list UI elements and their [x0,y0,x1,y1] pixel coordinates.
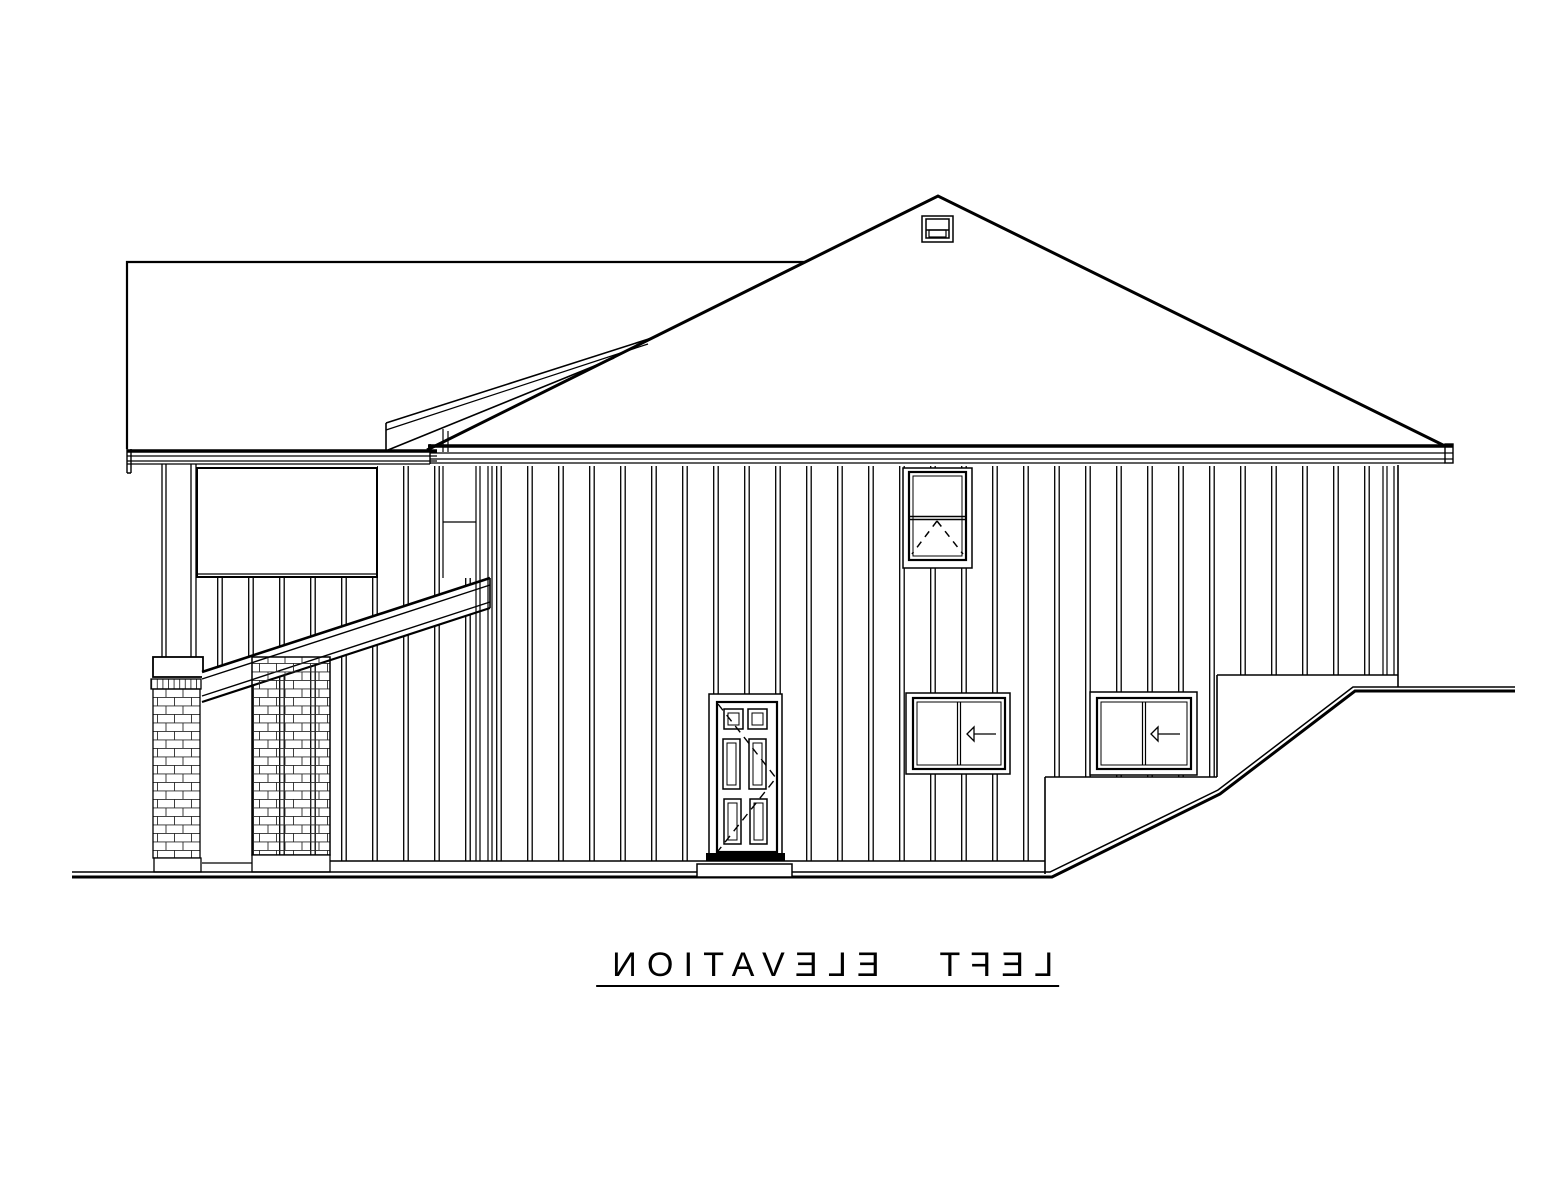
brick-pier [151,657,203,872]
door-stoop [697,864,792,877]
sheet-title: LEFT ELEVATION [596,948,1059,987]
awning-window [903,468,972,568]
title-block: LEFT ELEVATION [593,948,1063,987]
brick-column [252,657,330,872]
door-threshold [706,853,785,861]
slider-window-right [1090,692,1197,775]
elevation-sheet: LEFT ELEVATION [0,0,1553,1200]
porch-panel [197,468,377,577]
entry-door [706,694,785,861]
left-elevation-drawing [0,0,1553,1200]
slider-window-left [906,693,1010,774]
